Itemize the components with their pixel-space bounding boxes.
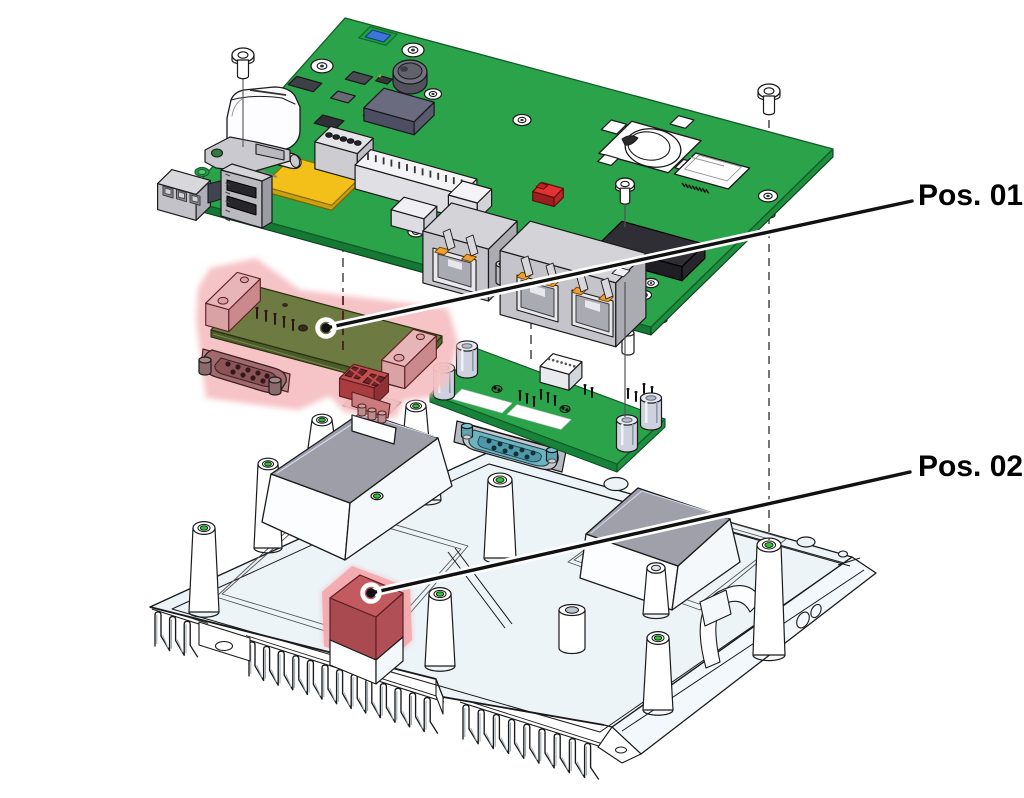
svg-text:Pos. 01: Pos. 01: [918, 179, 1023, 212]
svg-text:Pos. 02: Pos. 02: [918, 450, 1023, 483]
